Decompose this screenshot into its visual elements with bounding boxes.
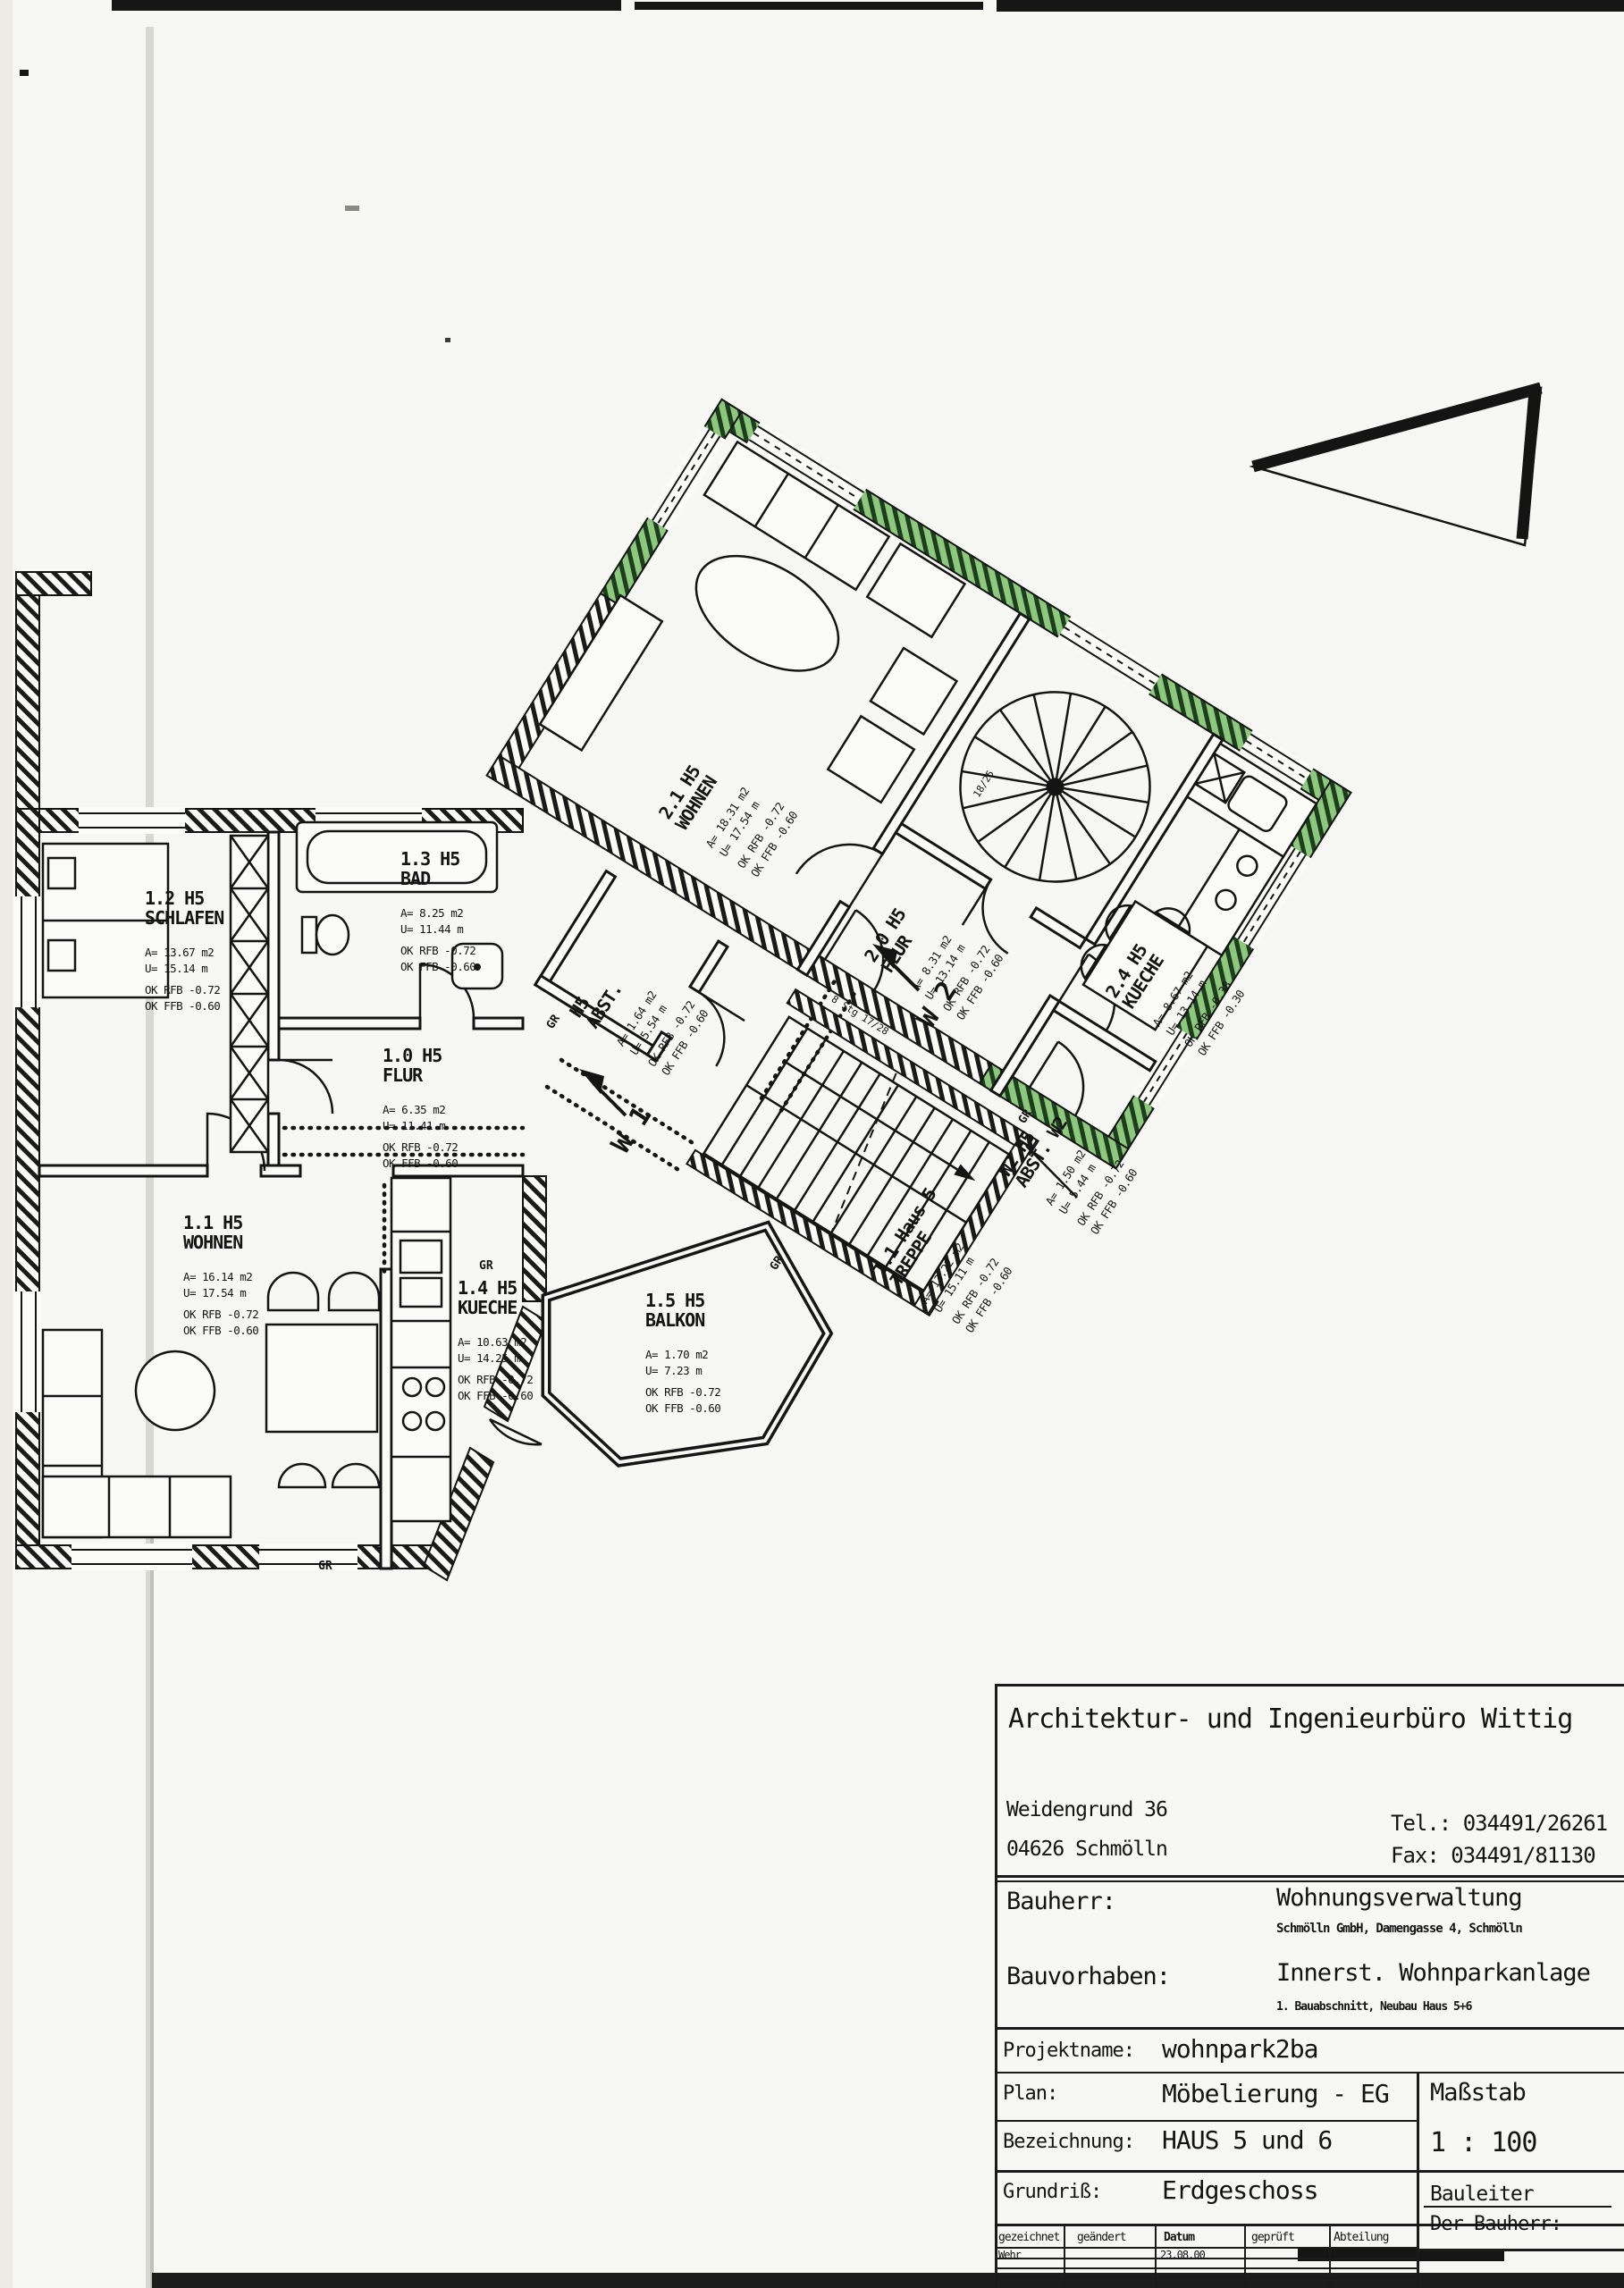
room-label-schlafen-1-2: 1.2 H5 SCHLAFEN A= 13.67 m2 U= 15.14 m O… (145, 887, 223, 1013)
door-treppe-spindel (963, 879, 1037, 954)
window (72, 1544, 192, 1570)
partition (1031, 908, 1085, 948)
armchair (828, 716, 913, 802)
rev-header-geprueft: geprüft (1251, 2231, 1294, 2244)
north-arrow (1253, 388, 1541, 545)
rev-header-abteilung: Abteilung (1334, 2231, 1388, 2244)
svg-text:OK FFB -0.60: OK FFB -0.60 (145, 999, 220, 1013)
window (79, 807, 185, 834)
partition (474, 1018, 523, 1029)
svg-text:BALKON: BALKON (645, 1309, 704, 1331)
svg-text:U= 7.23 m: U= 7.23 m (645, 1364, 702, 1377)
bathtub (297, 822, 497, 892)
gr-mark: GR (479, 1259, 493, 1273)
grundriss-label: Grundriß: (1003, 2181, 1101, 2203)
scanned-floor-plan-page: 18/25 (0, 0, 1624, 2288)
svg-text:U= 14.25 m: U= 14.25 m (458, 1351, 520, 1365)
svg-text:1.2 H5: 1.2 H5 (145, 887, 204, 909)
room-label-kueche-1-4: 1.4 H5 KUECHE A= 10.63 m2 U= 14.25 m OK … (458, 1277, 533, 1402)
plan-label: Plan: (1003, 2082, 1057, 2105)
firm-name: Architektur- und Ingenieurbüro Wittig (1008, 1703, 1572, 1735)
der-bauherr-label: Der Bauherr: (1430, 2213, 1561, 2235)
kitchen-counter (391, 1178, 450, 1521)
projektname-value: wohnpark2ba (1162, 2034, 1317, 2064)
bauvorhaben-sub: 1. Bauabschnitt, Neubau Haus 5+6 (1276, 2000, 1471, 2014)
svg-text:1.3 H5: 1.3 H5 (400, 848, 459, 870)
door-bad-schlafen (279, 1060, 332, 1114)
bauvorhaben-value: Innerst. Wohnparkanlage (1276, 1959, 1590, 1987)
svg-text:FLUR: FLUR (383, 1064, 424, 1086)
armchair (329, 1273, 379, 1310)
bezeichnung-value: HAUS 5 und 6 (1162, 2125, 1332, 2155)
svg-text:A= 1.70 m2: A= 1.70 m2 (645, 1348, 708, 1361)
svg-text:1.0 H5: 1.0 H5 (383, 1045, 442, 1066)
svg-text:A= 6.35 m2: A= 6.35 m2 (383, 1103, 445, 1116)
svg-text:1.5 H5: 1.5 H5 (645, 1290, 704, 1311)
partition (690, 941, 728, 992)
window (259, 1544, 358, 1570)
bauvorhaben-label: Bauvorhaben: (1006, 1963, 1170, 1990)
svg-text:OK RFB -0.72: OK RFB -0.72 (183, 1308, 258, 1321)
room-label-wohnen-1-1: 1.1 H5 WOHNEN A= 16.14 m2 U= 17.54 m OK … (183, 1212, 258, 1337)
gr-mark: GR (544, 1013, 563, 1031)
rev-gezeichnet-value: Wehr (998, 2249, 1021, 2261)
room-label-balkon-1-5: 1.5 H5 BALKON A= 1.70 m2 U= 7.23 m OK RF… (645, 1290, 720, 1415)
grundriss-value: Erdgeschoss (1162, 2175, 1317, 2205)
partition (268, 1114, 279, 1171)
svg-text:OK FFB -0.60: OK FFB -0.60 (400, 960, 475, 973)
window (1057, 616, 1163, 695)
svg-text:A= 16.14 m2: A= 16.14 m2 (183, 1270, 252, 1283)
partition (896, 824, 990, 889)
svg-text:U= 17.54 m: U= 17.54 m (183, 1286, 246, 1300)
chair (332, 1464, 379, 1487)
spiral-staircase: 18/25 (924, 656, 1185, 917)
room-label-abst-h5: H5 ABST. A= 1.64 m2 U= 5.54 m OK RFB -0.… (565, 946, 711, 1078)
firm-fax: Fax: 034491/81130 (1391, 1843, 1595, 1868)
svg-text:OK FFB -0.60: OK FFB -0.60 (645, 1401, 720, 1415)
wall-kitchen-east (523, 1176, 546, 1301)
bauherr-sub: Schmölln GmbH, Damengasse 4, Schmölln (1276, 1922, 1522, 1936)
svg-text:A= 10.63 m2: A= 10.63 m2 (458, 1335, 526, 1349)
wall (16, 572, 91, 595)
svg-text:OK RFB -0.72: OK RFB -0.72 (400, 944, 475, 957)
room-label-wohnen-2-1: 2.1 H5 WOHNEN A= 18.31 m2 U= 17.54 m OK … (654, 748, 800, 879)
svg-text:BAD: BAD (400, 868, 431, 889)
partition (279, 1018, 420, 1029)
armchair (871, 648, 956, 734)
svg-text:OK FFB -0.60: OK FFB -0.60 (183, 1324, 258, 1337)
partition (535, 871, 616, 991)
door-balkon (490, 1419, 542, 1444)
partition (873, 613, 1029, 854)
svg-text:OK RFB -0.72: OK RFB -0.72 (145, 983, 220, 997)
svg-text:OK FFB -0.60: OK FFB -0.60 (383, 1157, 458, 1170)
projektname-label: Projektname: (1003, 2040, 1134, 2062)
room-label-flur-1-0: 1.0 H5 FLUR A= 6.35 m2 U= 11.41 m OK RFB… (383, 1045, 458, 1170)
dining-table (266, 1325, 377, 1432)
wardrobe (231, 836, 268, 1152)
svg-text:OK FFB -0.60: OK FFB -0.60 (458, 1389, 533, 1402)
bauleiter-label: Bauleiter (1430, 2183, 1534, 2206)
firm-tel: Tel.: 034491/26261 (1391, 1811, 1607, 1836)
svg-text:U= 11.41 m: U= 11.41 m (383, 1119, 445, 1132)
massstab-value: 1 : 100 (1430, 2127, 1536, 2158)
svg-text:1.1 H5: 1.1 H5 (183, 1212, 242, 1233)
rev-header-datum: Datum (1164, 2231, 1194, 2244)
door-wohnen2 (796, 820, 882, 906)
svg-text:OK RFB -0.72: OK RFB -0.72 (383, 1140, 458, 1154)
wall (16, 572, 39, 813)
plan-value: Möbelierung - EG (1162, 2079, 1389, 2108)
floor-plan-drawing: 18/25 (0, 0, 1624, 2288)
firm-address-line2: 04626 Schmölln (1006, 1838, 1167, 1861)
partition (991, 996, 1059, 1096)
svg-text:A= 13.67 m2: A= 13.67 m2 (145, 946, 214, 959)
svg-text:U= 11.44 m: U= 11.44 m (400, 922, 463, 936)
firm-address-line1: Weidengrund 36 (1006, 1798, 1167, 1821)
massstab-label: Maßstab (1430, 2079, 1526, 2107)
svg-text:A= 8.25 m2: A= 8.25 m2 (400, 906, 463, 920)
chair (279, 1464, 325, 1487)
partition (268, 832, 279, 1060)
svg-text:OK RFB -0.72: OK RFB -0.72 (645, 1385, 720, 1399)
rev-header-gezeichnet: gezeichnet (998, 2231, 1059, 2244)
armchair (268, 1273, 318, 1310)
svg-text:OK RFB -0.72: OK RFB -0.72 (458, 1373, 533, 1386)
toilet (302, 915, 349, 955)
rev-datum-value: 23.08.00 (1160, 2249, 1205, 2261)
right-wing: 18/25 (367, 397, 1354, 1358)
partition (261, 1165, 300, 1176)
window (14, 1291, 41, 1412)
gr-mark: GR (318, 1560, 332, 1573)
bauherr-label: Bauherr: (1006, 1888, 1115, 1915)
partition (381, 1269, 391, 1569)
window (14, 896, 41, 1007)
partition (39, 1165, 207, 1176)
svg-text:1.4 H5: 1.4 H5 (458, 1277, 517, 1299)
bezeichnung-label: Bezeichnung: (1003, 2131, 1134, 2153)
svg-text:WOHNEN: WOHNEN (183, 1232, 242, 1253)
svg-text:KUECHE: KUECHE (458, 1297, 517, 1318)
bauherr-value: Wohnungsverwaltung (1276, 1884, 1522, 1912)
svg-text:U= 15.14 m: U= 15.14 m (145, 962, 207, 975)
rev-header-geaendert: geändert (1077, 2231, 1126, 2244)
round-table (136, 1351, 215, 1430)
svg-text:SCHLAFEN: SCHLAFEN (145, 907, 223, 929)
